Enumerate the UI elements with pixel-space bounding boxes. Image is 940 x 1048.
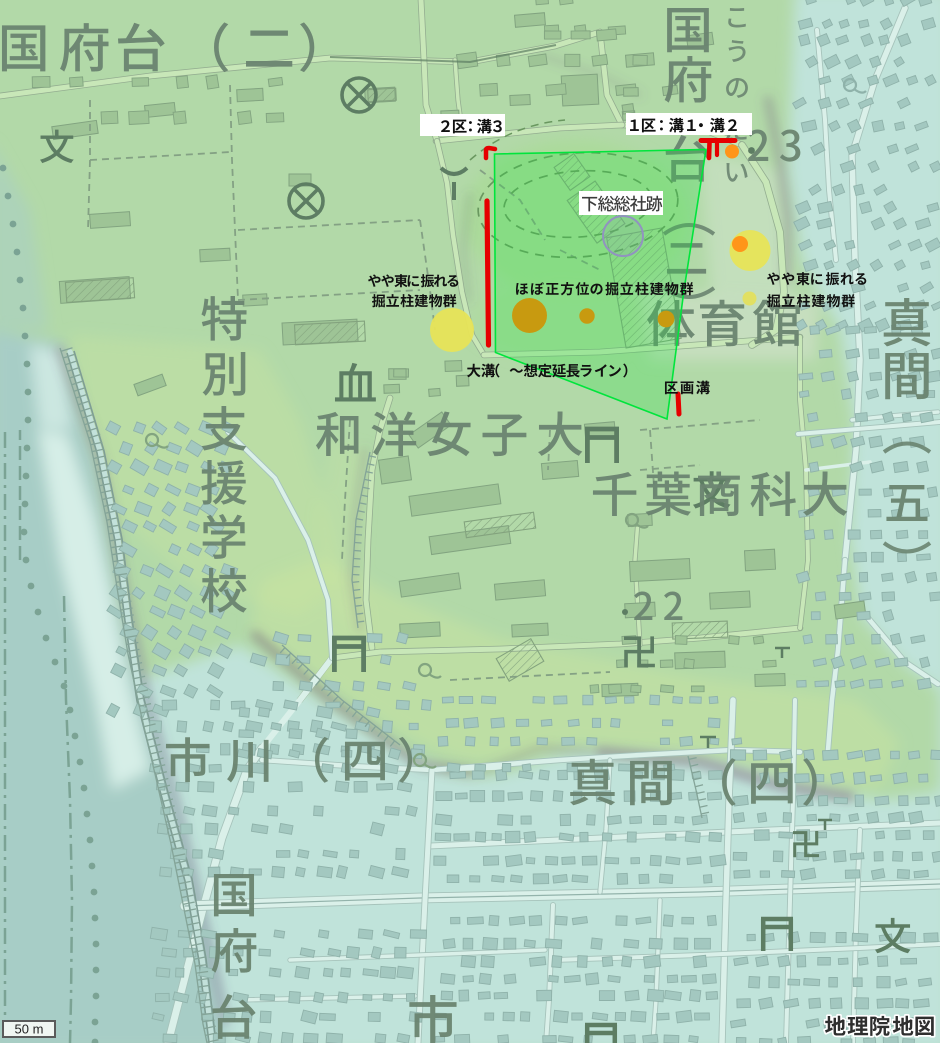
svg-text:50 m: 50 m [15, 1022, 44, 1037]
